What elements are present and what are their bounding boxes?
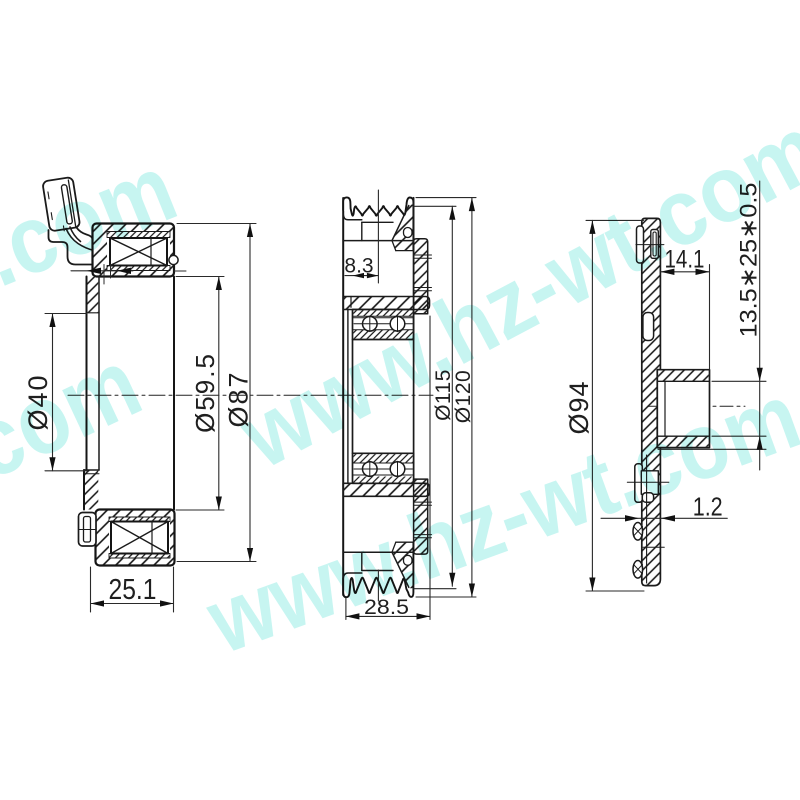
svg-text:Ø94: Ø94 xyxy=(564,380,594,434)
svg-text:25.1: 25.1 xyxy=(109,574,157,606)
svg-text:Ø59.5: Ø59.5 xyxy=(190,352,220,433)
svg-text:8.3: 8.3 xyxy=(344,255,373,278)
